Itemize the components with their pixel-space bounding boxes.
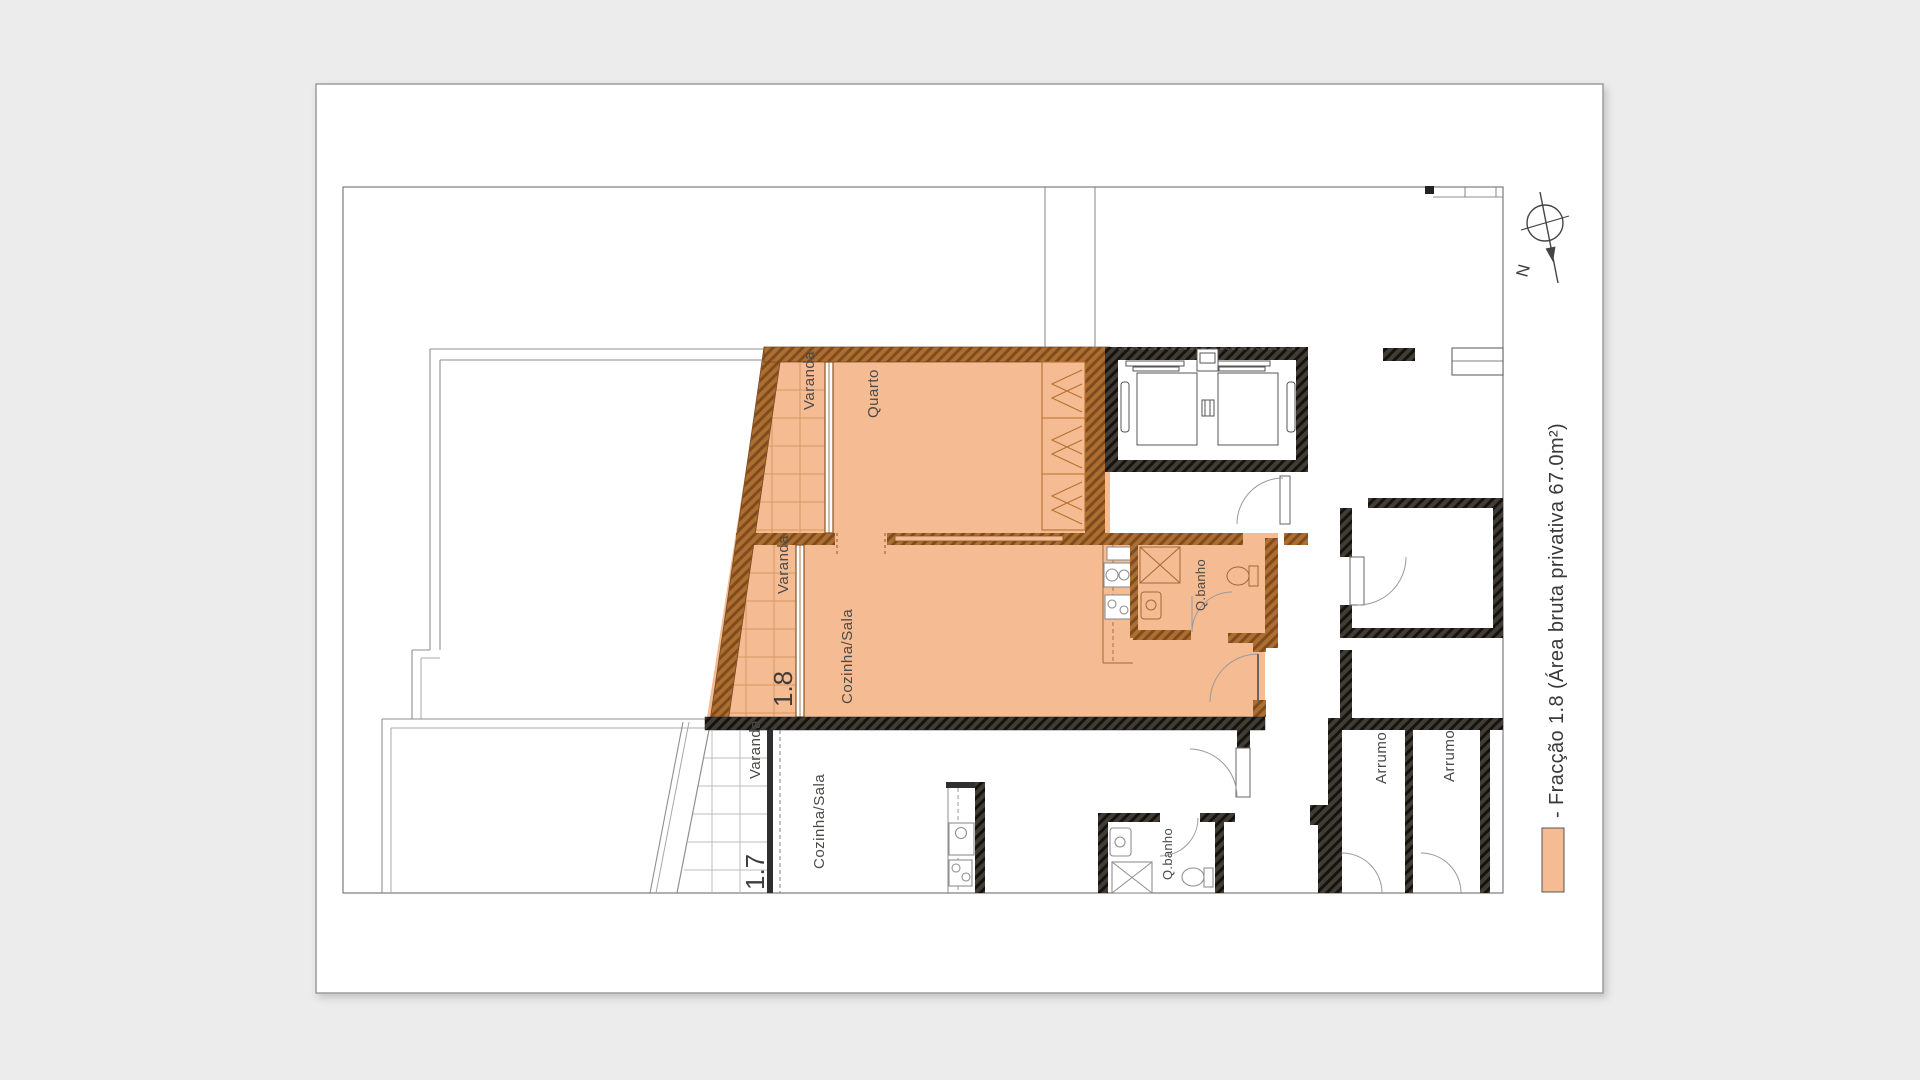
label-arrumo-2: Arrumo xyxy=(1441,730,1458,782)
south-wall xyxy=(705,717,1265,730)
quarto-east-wall xyxy=(1085,347,1105,545)
hall-south-wall xyxy=(1105,533,1243,545)
kitchen-cabinet xyxy=(1107,547,1131,560)
elevator-car-1 xyxy=(1137,373,1197,445)
legend-label: - Fracção 1.8 (Área bruta privativa 67.0… xyxy=(1545,423,1568,818)
wall-segment xyxy=(1383,348,1415,361)
label-varanda-lower: Varanda xyxy=(775,535,792,594)
label-cozinha-sala-1-7: Cozinha/Sala xyxy=(811,774,828,869)
toilet-1-7 xyxy=(1182,868,1204,886)
window-box xyxy=(1452,348,1503,375)
elevator-car-2 xyxy=(1218,373,1278,445)
label-cozinha-sala-1-8: Cozinha/Sala xyxy=(839,609,856,704)
label-unit-1-8: 1.8 xyxy=(768,671,798,707)
label-varanda-1-7: Varanda xyxy=(747,720,764,779)
label-varanda-upper: Varanda xyxy=(801,351,818,410)
legend-swatch xyxy=(1542,828,1564,892)
floor-plan-page: N - Fracção 1.8 (Área bruta privativa 67… xyxy=(0,0,1920,1080)
sliding-door xyxy=(895,536,1063,541)
east-room-door-leaf xyxy=(1350,557,1364,605)
label-unit-1-7: 1.7 xyxy=(740,854,770,890)
label-arrumo-1: Arrumo xyxy=(1373,732,1390,784)
label-quarto: Quarto xyxy=(865,369,882,418)
wall-stub xyxy=(1425,186,1434,194)
hall-door-leaf xyxy=(1280,476,1290,524)
bathroom-east-wall xyxy=(1265,538,1278,648)
label-qbanho-1-7: Q.banho xyxy=(1160,828,1175,880)
counterweight xyxy=(1202,400,1214,416)
cooktop-1-7 xyxy=(949,860,972,886)
label-qbanho-1-8: Q.banho xyxy=(1193,559,1208,611)
